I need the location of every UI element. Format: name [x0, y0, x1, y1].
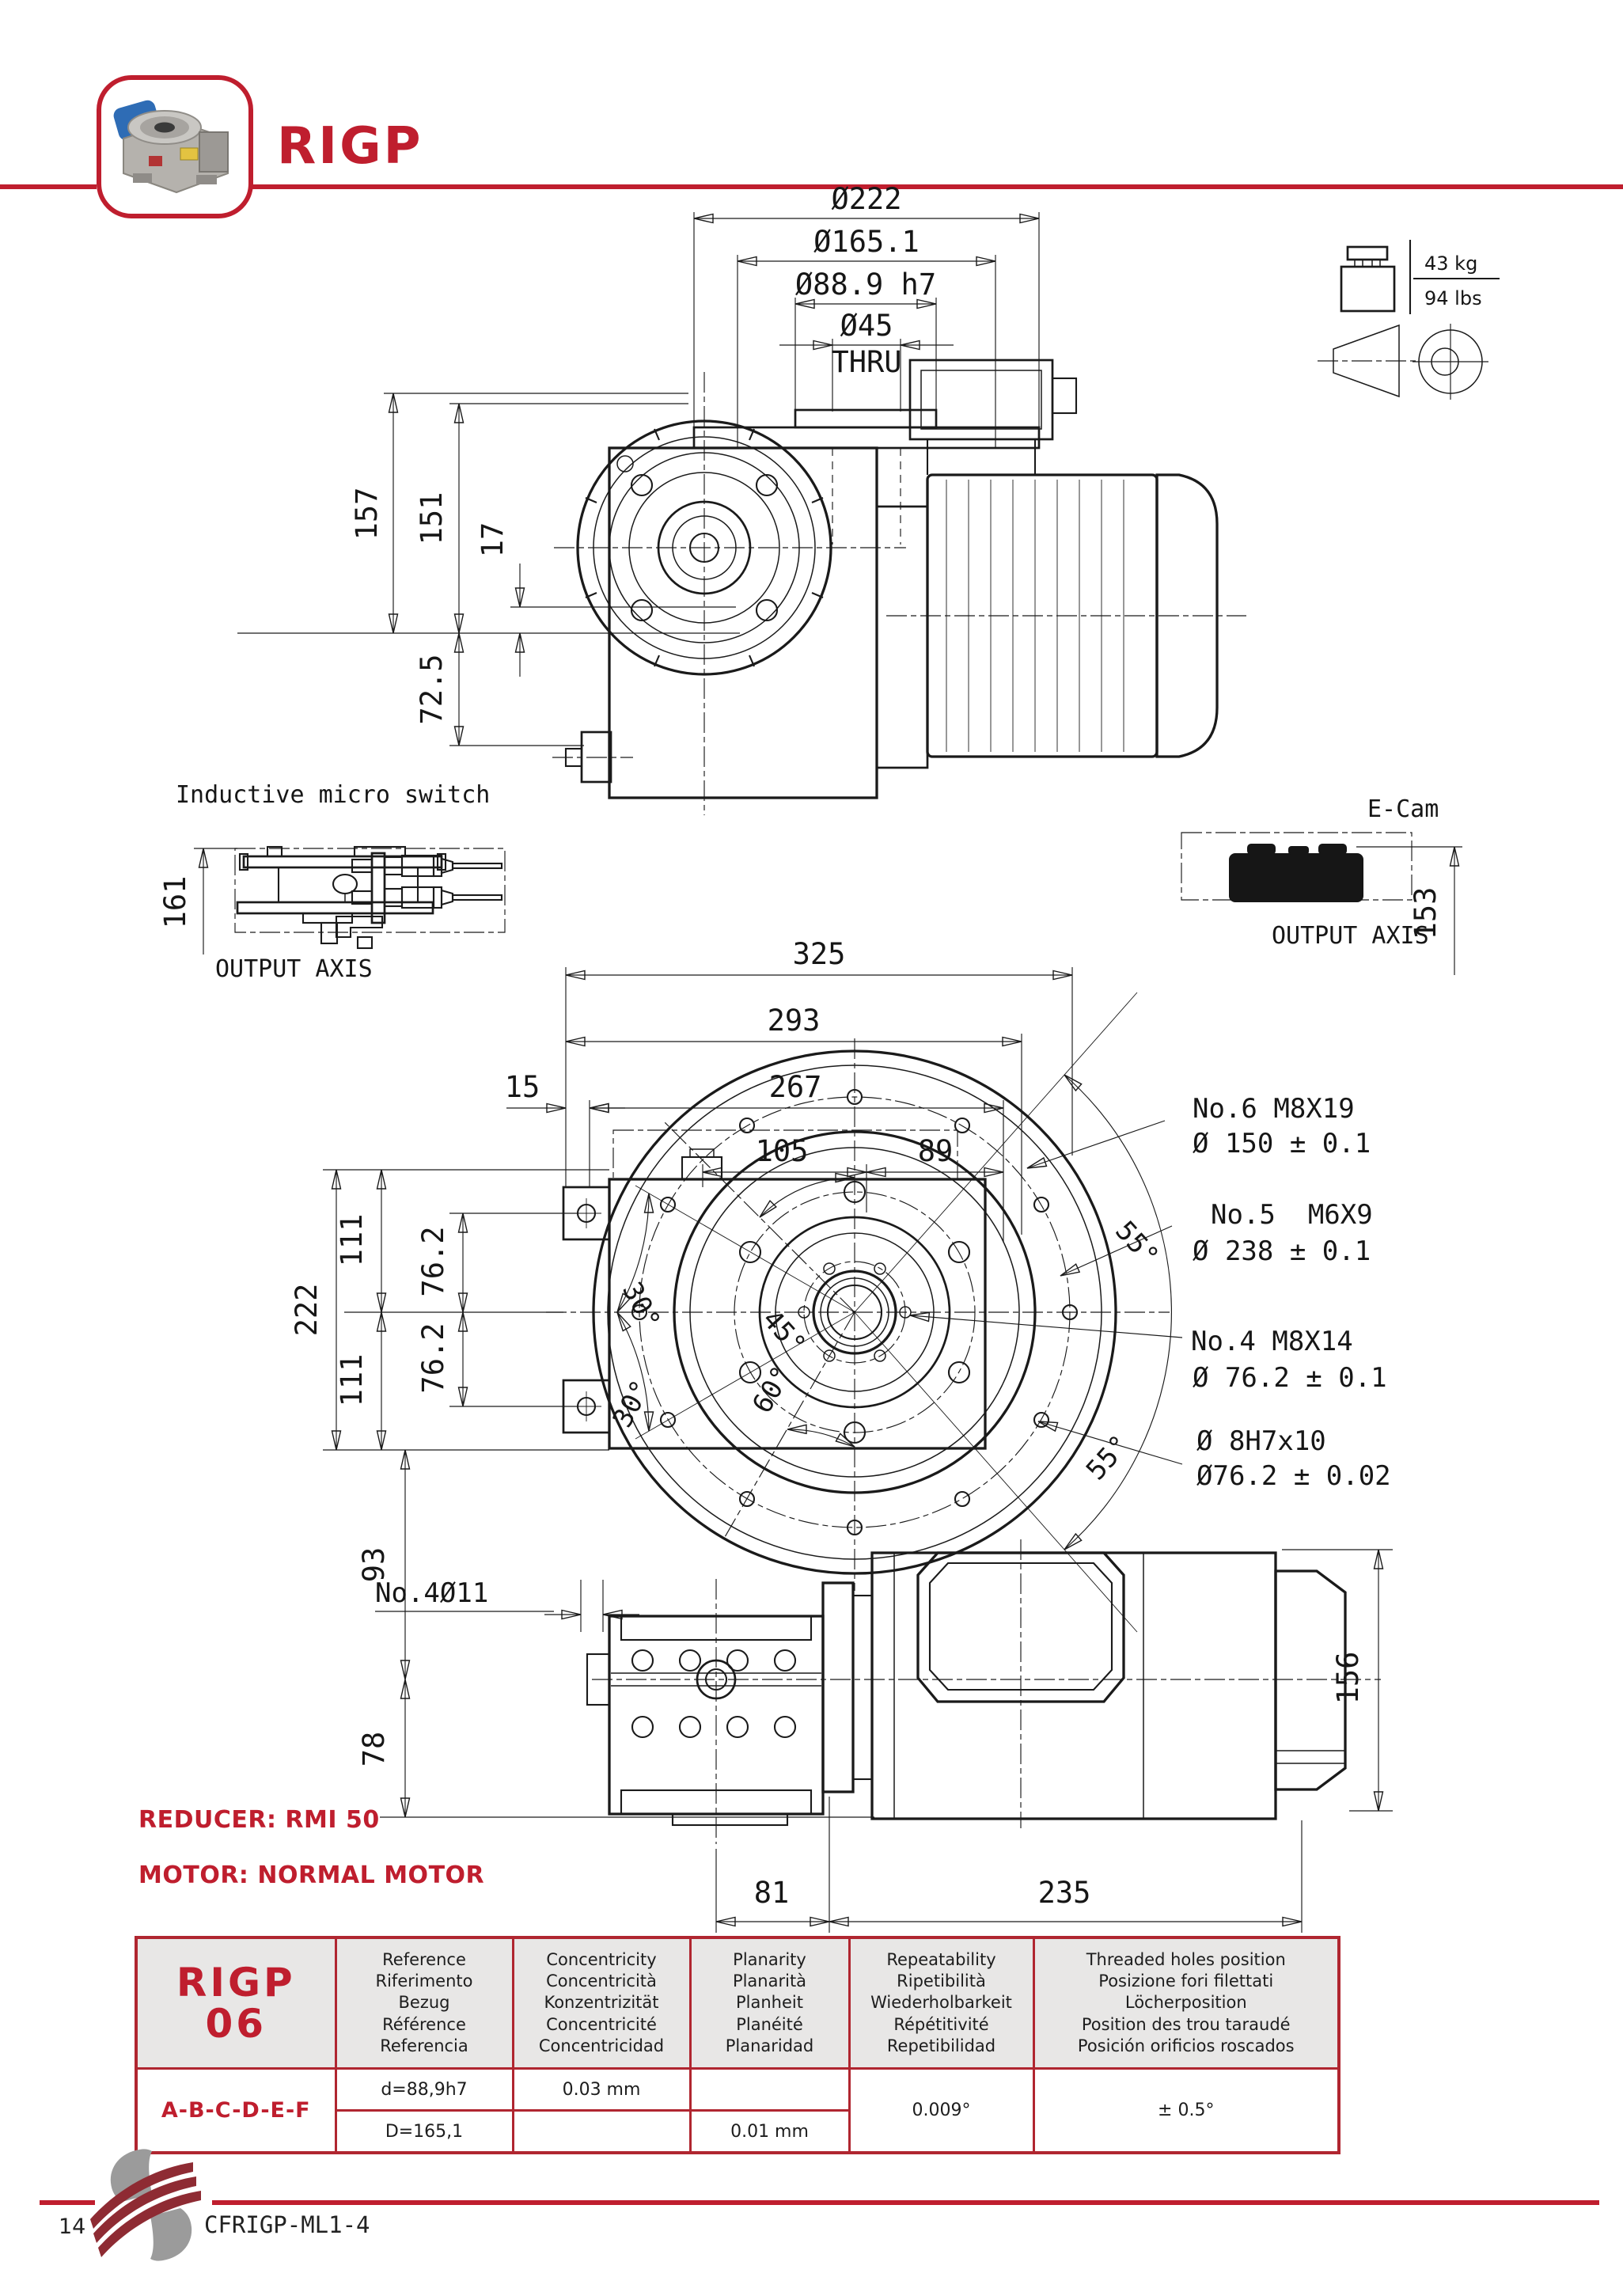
header-repeatability: Repeatability Ripetibilità Wiederholbark… — [849, 1937, 1033, 2069]
side-view-dimensions: Ø222 Ø165.1 Ø88.9 h7 Ø45 THRU — [237, 182, 1039, 746]
reducer-note: REDUCER: RMI 50 — [138, 1806, 380, 1834]
micro-switch-drawing: Inductive micro switch — [158, 781, 505, 983]
cell-planarity-d — [690, 2069, 849, 2111]
document-code: CFRIGP-ML1-4 — [204, 2211, 370, 2238]
cell-repeatability: 0.009° — [849, 2069, 1033, 2154]
dim-111-bottom: 111 — [335, 1354, 369, 1407]
dim-235: 235 — [1038, 1876, 1091, 1910]
front-view-lower-assembly — [587, 1539, 1381, 1844]
connector-top — [352, 856, 502, 876]
header-threaded-holes: Threaded holes position Posizione fori f… — [1033, 1937, 1339, 2069]
annotation-8h7-dia: Ø76.2 ± 0.02 — [1196, 1460, 1391, 1492]
dim-111-top: 111 — [335, 1214, 369, 1267]
dim-76-2-bottom: 76.2 — [416, 1323, 450, 1393]
ecam-title: E-Cam — [1367, 795, 1439, 823]
company-logo — [89, 2146, 212, 2267]
angle-30-top: 30° — [616, 1277, 666, 1334]
annotation-no4: No.4 M8X14 — [1191, 1326, 1353, 1357]
header-concentricity: Concentricity Concentricità Konzentrizit… — [513, 1937, 690, 2069]
model-line1: RIGP — [141, 1962, 332, 2004]
footer-rule-left — [40, 2200, 95, 2205]
cell-threaded-holes: ± 0.5° — [1033, 2069, 1339, 2154]
annotation-no6-dia: Ø 150 ± 0.1 — [1193, 1128, 1371, 1159]
dim-267: 267 — [769, 1070, 822, 1104]
annotation-8h7: Ø 8H7x10 — [1196, 1425, 1326, 1457]
ecam-output-axis: OUTPUT AXIS — [1272, 922, 1429, 950]
front-view-drawing: 55° 55° 30° 30° 45° 60° — [546, 992, 1182, 1632]
dim-dia889: Ø88.9 h7 — [795, 268, 936, 302]
table-header-row: RIGP 06 Reference Riferimento Bezug Réfé… — [136, 1937, 1339, 2069]
connector-bottom — [352, 887, 502, 908]
ecam-drawing: E-Cam 153 OUTPUT AXIS — [1181, 795, 1462, 975]
dim-151: 151 — [415, 492, 449, 545]
dim-81: 81 — [754, 1876, 790, 1910]
dim-157: 157 — [350, 488, 384, 541]
cell-reference-D: D=165,1 — [336, 2111, 513, 2154]
page-number: 14 — [59, 2214, 85, 2239]
spec-table: RIGP 06 Reference Riferimento Bezug Réfé… — [135, 1936, 1337, 2154]
annotation-no4-dia: Ø 76.2 ± 0.1 — [1193, 1362, 1387, 1394]
weight-badge: 43 kg 94 lbs — [1341, 240, 1500, 314]
front-view-left-dimensions: 222 111 111 76.2 76.2 93 78 — [290, 1170, 874, 1817]
annotation-no4-d11: No.4Ø11 — [375, 1577, 488, 1609]
dim-dia222: Ø222 — [831, 182, 901, 216]
dim-156: 156 — [1331, 1652, 1365, 1705]
catalog-page: RIGP — [0, 0, 1623, 2296]
dim-89: 89 — [918, 1134, 954, 1168]
dim-78: 78 — [357, 1732, 391, 1767]
header-planarity: Planarity Planarità Planheit Planéité Pl… — [690, 1937, 849, 2069]
dim-thru: THRU — [831, 345, 901, 379]
dim-72-5: 72.5 — [415, 654, 449, 724]
cell-reference-d: d=88,9h7 — [336, 2069, 513, 2111]
annotation-no6: No.6 M8X19 — [1193, 1093, 1355, 1125]
housing-slots — [632, 1650, 795, 1737]
micro-switch-title: Inductive micro switch — [176, 781, 490, 809]
table-model-cell: RIGP 06 — [136, 1937, 336, 2069]
dim-76-2-top: 76.2 — [416, 1226, 450, 1296]
projection-symbol — [1318, 324, 1488, 400]
annotation-no5: No.5 M6X9 — [1211, 1199, 1373, 1231]
dim-105: 105 — [756, 1134, 809, 1168]
dim-222: 222 — [290, 1284, 324, 1337]
model-line2: 06 — [141, 2003, 332, 2045]
dim-161: 161 — [158, 876, 192, 929]
cell-planarity-D: 0.01 mm — [690, 2111, 849, 2154]
row-label-cell: A-B-C-D-E-F — [136, 2069, 336, 2154]
angle-60: 60° — [746, 1361, 798, 1418]
angle-55-top: 55° — [1109, 1215, 1165, 1272]
dim-dia45: Ø45 — [840, 309, 893, 343]
cell-concentricity-d: 0.03 mm — [513, 2069, 690, 2111]
angle-55-bottom: 55° — [1080, 1429, 1136, 1486]
dim-325: 325 — [793, 937, 846, 971]
micro-switch-output-axis: OUTPUT AXIS — [215, 955, 373, 983]
front-view-bottom-dimensions: No.4Ø11 81 235 156 — [375, 1550, 1393, 1933]
annotation-no5-dia: Ø 238 ± 0.1 — [1193, 1235, 1371, 1267]
dim-293: 293 — [768, 1004, 821, 1038]
angle-30-bottom: 30° — [607, 1375, 658, 1433]
side-view-drawing — [552, 360, 1246, 815]
dim-15: 15 — [505, 1070, 540, 1104]
dim-17: 17 — [476, 522, 510, 558]
front-view-annotations: No.6 M8X19 Ø 150 ± 0.1 No.5 M6X9 Ø 238 ±… — [1191, 1093, 1391, 1492]
footer-rule-right — [212, 2200, 1599, 2205]
front-view-top-dimensions: 325 293 267 15 105 89 — [505, 937, 1072, 1243]
weight-lbs: 94 lbs — [1424, 287, 1482, 309]
header-reference: Reference Riferimento Bezug Référence Re… — [336, 1937, 513, 2069]
cell-concentricity-D — [513, 2111, 690, 2154]
table-row-d: A-B-C-D-E-F d=88,9h7 0.03 mm 0.009° ± 0.… — [136, 2069, 1339, 2111]
weight-kg: 43 kg — [1424, 252, 1477, 275]
dim-dia165: Ø165.1 — [813, 225, 920, 259]
motor-note: MOTOR: NORMAL MOTOR — [138, 1861, 484, 1889]
